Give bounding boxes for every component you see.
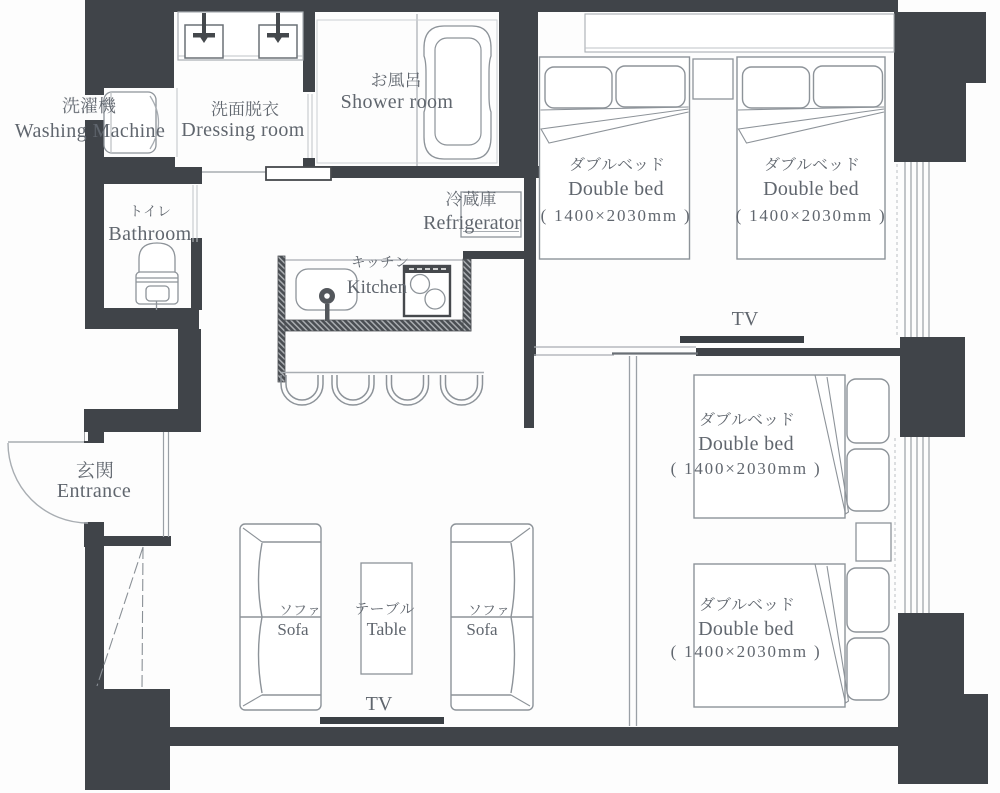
svg-text:( 1400×2030mm ): ( 1400×2030mm ) xyxy=(541,206,692,225)
svg-text:Kitchen: Kitchen xyxy=(347,277,408,298)
svg-text:( 1400×2030mm ): ( 1400×2030mm ) xyxy=(671,642,822,661)
svg-text:Sofa: Sofa xyxy=(466,620,498,639)
svg-text:Bathroom: Bathroom xyxy=(108,223,191,245)
svg-text:TV: TV xyxy=(732,308,759,330)
svg-text:Entrance: Entrance xyxy=(57,480,131,502)
svg-text:Refrigerator: Refrigerator xyxy=(423,212,521,234)
svg-text:Table: Table xyxy=(367,619,407,639)
svg-text:( 1400×2030mm ): ( 1400×2030mm ) xyxy=(736,206,887,225)
svg-text:Double bed: Double bed xyxy=(698,618,794,640)
svg-text:( 1400×2030mm ): ( 1400×2030mm ) xyxy=(671,459,822,478)
svg-text:Double bed: Double bed xyxy=(698,433,794,455)
svg-text:Shower room: Shower room xyxy=(341,91,454,113)
svg-text:Sofa: Sofa xyxy=(277,620,309,639)
svg-text:TV: TV xyxy=(366,693,393,715)
svg-text:Washing Machine: Washing Machine xyxy=(15,120,165,142)
svg-text:Double bed: Double bed xyxy=(568,178,664,200)
svg-text:Dressing room: Dressing room xyxy=(181,119,305,141)
svg-text:Double bed: Double bed xyxy=(763,178,859,200)
